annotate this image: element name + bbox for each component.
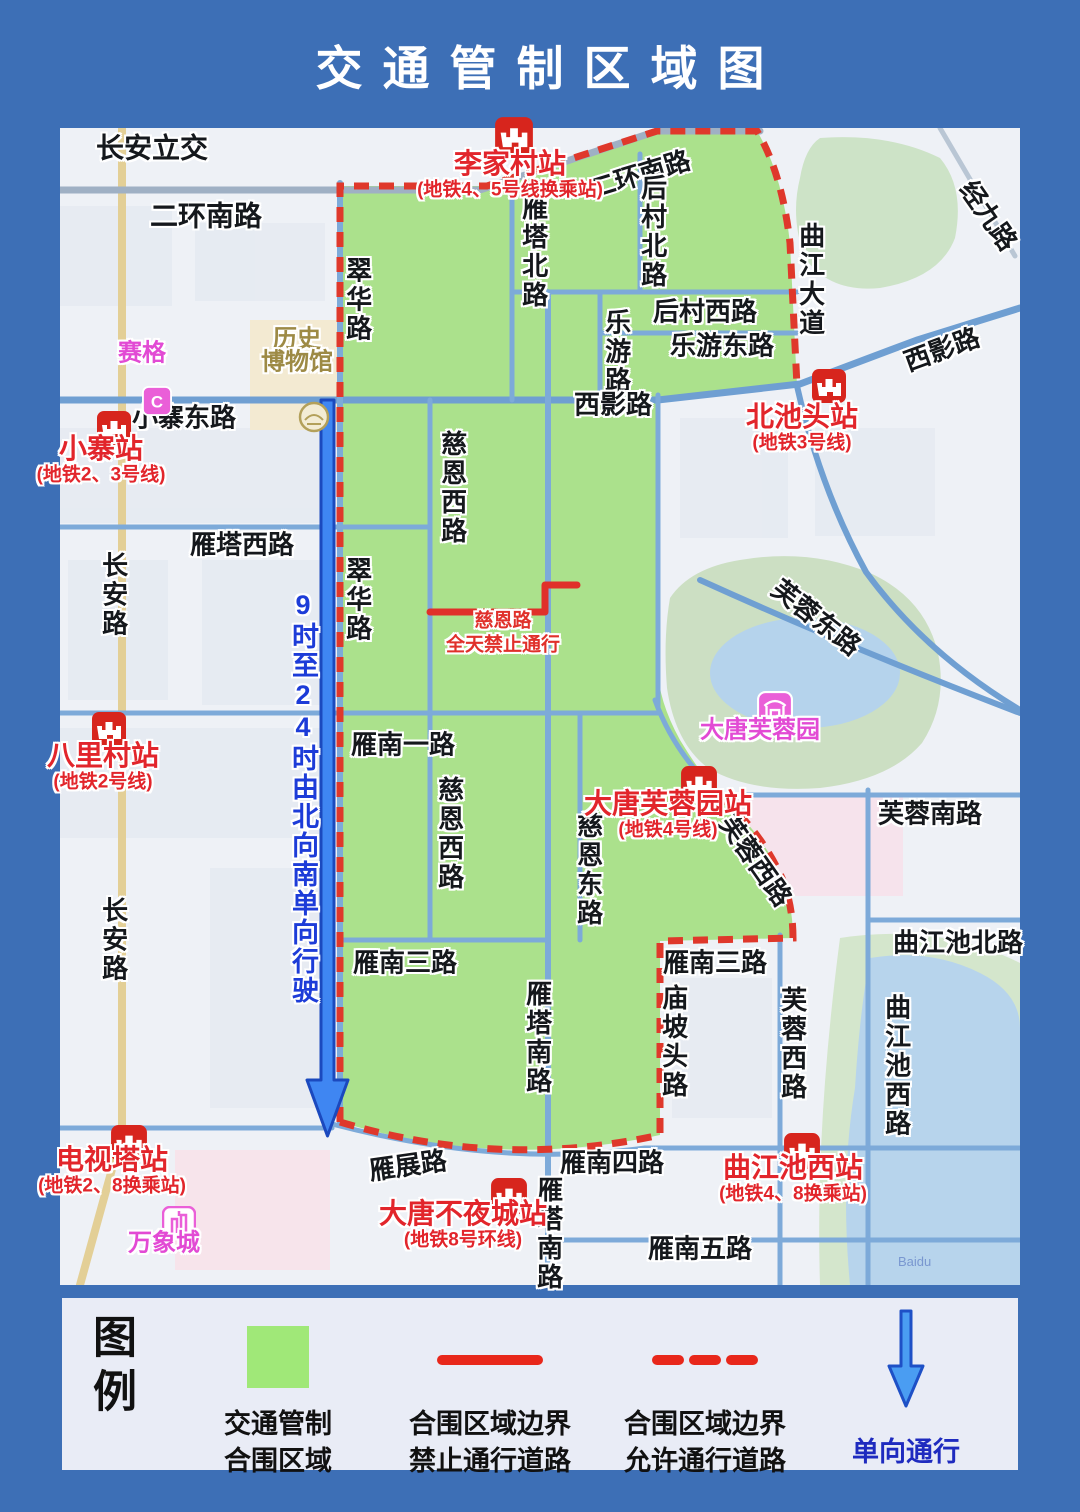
station-subtitle: (地铁2、3号线) — [37, 460, 166, 487]
legend-item-closed-boundary: 合围区域边界 禁止通行道路 — [370, 1298, 610, 1470]
road-label: 雁南五路 — [648, 1235, 752, 1262]
road-label: 翠华路 — [343, 557, 370, 644]
road-label: 芙蓉南路 — [878, 800, 982, 827]
road-label: 后村西路 — [653, 298, 757, 325]
poi-label: 博物馆 — [261, 342, 333, 377]
road-label: 雁塔南路 — [523, 980, 550, 1096]
station-subtitle: (地铁4、8换乘站) — [719, 1179, 867, 1206]
oneway-direction-note: 9时至24时由北向南单向行驶 — [284, 590, 323, 1005]
road-label: 雁南一路 — [351, 731, 455, 758]
closed-road-rule: 全天禁止通行 — [446, 633, 560, 657]
oneway-arrow-legend-icon — [884, 1306, 928, 1415]
legend-label: 单向通行 — [786, 1430, 1026, 1469]
road-label: 慈恩西路 — [435, 776, 462, 892]
road-label: 曲江大道 — [796, 222, 823, 338]
legend-panel: 图例 交通管制 合围区域 合围区域边界 禁止通行道路 合围区域边界 允许通行道路… — [62, 1298, 1018, 1470]
legend-title: 图例 — [78, 1314, 142, 1422]
road-label: 长安路 — [99, 552, 126, 639]
road-label: 曲江池西路 — [882, 994, 909, 1139]
legend-item-oneway: 单向通行 — [786, 1298, 1026, 1470]
station-subtitle: (地铁3号线) — [752, 428, 851, 455]
station-subtitle: (地铁8号环线) — [404, 1225, 522, 1252]
road-label: 雁南三路 — [353, 949, 457, 976]
poi-label: 大唐芙蓉园 — [700, 710, 820, 745]
map-canvas: 长安立交二环南路二环南路经九路曲江大道翠华路雁塔北路后村北路后村西路乐游路乐游东… — [60, 128, 1020, 1285]
road-label: 长安路 — [99, 897, 126, 984]
road-label: 后村北路 — [638, 174, 665, 290]
legend-label: 合围区域边界 — [370, 1402, 610, 1441]
station-subtitle: (地铁2号线) — [53, 767, 152, 794]
dashed-red-line-icon — [650, 1353, 760, 1372]
road-label: 雁南四路 — [560, 1149, 664, 1176]
legend-label: 交通管制 — [158, 1402, 398, 1441]
svg-text:C: C — [151, 393, 163, 412]
legend-label: 禁止通行道路 — [370, 1439, 610, 1478]
closed-road-name: 慈恩路 — [446, 609, 560, 633]
station-subtitle: (地铁4号线) — [618, 815, 717, 842]
road-label: 二环南路 — [150, 201, 262, 230]
road-label: 慈恩东路 — [574, 812, 601, 928]
title-bar: 交通管制区域图 — [0, 0, 1080, 128]
road-label: 西影路 — [574, 391, 652, 418]
road-label: 乐游东路 — [670, 332, 774, 359]
closed-road-note: 慈恩路 全天禁止通行 — [446, 609, 560, 657]
station-subtitle: (地铁2、8换乘站) — [38, 1171, 186, 1198]
road-label: 翠华路 — [343, 257, 370, 344]
legend-item-restricted-area: 交通管制 合围区域 — [158, 1298, 398, 1470]
poi-label: 赛格 — [118, 333, 166, 368]
poi-label: 万象城 — [128, 1223, 200, 1258]
road-label: 庙坡头路 — [659, 984, 686, 1100]
road-label: 慈恩西路 — [438, 430, 465, 546]
qujiang-lake — [846, 955, 1020, 1285]
road-label: 乐游路 — [602, 309, 629, 396]
station-subtitle: (地铁4、5号线换乘站) — [417, 175, 603, 202]
road-label: 芙蓉西路 — [778, 986, 805, 1102]
map-watermark: Baidu — [898, 1254, 931, 1269]
page-title: 交通管制区域图 — [296, 30, 785, 99]
solid-red-line-icon — [435, 1353, 545, 1372]
road-label: 雁塔北路 — [519, 194, 546, 310]
road-label: 曲江池北路 — [893, 929, 1023, 956]
road-label: 雁南三路 — [663, 949, 767, 976]
legend-label: 合围区域 — [158, 1439, 398, 1478]
restricted-area-swatch-icon — [247, 1326, 309, 1388]
road-label: 雁塔西路 — [190, 531, 294, 558]
road-label: 长安立交 — [96, 133, 208, 162]
